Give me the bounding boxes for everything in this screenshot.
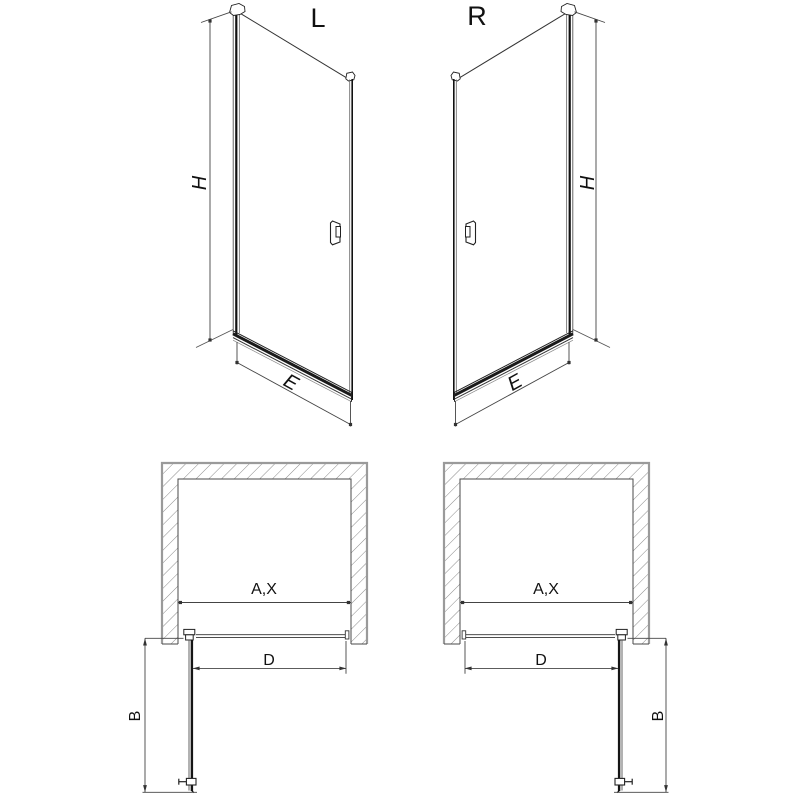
left-width-dim-label: E [280, 370, 303, 396]
technical-drawing-page: L H E R H E A,X D B A,X D [0, 0, 800, 800]
right-door-perspective-view: R H E [451, 1, 610, 427]
right-door-drawing [451, 4, 610, 427]
wall-inner-edge [178, 479, 351, 644]
right-swing-dim-label: B [650, 711, 667, 722]
right-width-dim-label: E [504, 370, 527, 396]
left-height-dim-label: H [189, 175, 211, 190]
left-variant-label: L [310, 3, 325, 33]
wall-hatching [162, 463, 367, 644]
left-opening-dim-label: A,X [251, 581, 277, 598]
right-variant-label: R [467, 1, 487, 31]
left-plan-view: A,X D B [127, 463, 367, 793]
right-plan-walls [444, 463, 649, 644]
left-swing-dim-label: B [127, 711, 144, 722]
left-plan-walls [162, 463, 367, 644]
right-opening-dim-label: A,X [533, 581, 559, 598]
wall-inner-edge [460, 479, 633, 644]
right-height-dim-label: H [577, 175, 599, 190]
wall-hatching [444, 463, 649, 644]
left-door-drawing [196, 4, 355, 427]
right-door-dim-label: D [535, 652, 547, 669]
left-door-dim-label: D [263, 652, 275, 669]
right-plan-view: A,X D B [444, 463, 669, 793]
wall-outer-edge [444, 463, 649, 644]
shower-door-technical-drawing: L H E R H E A,X D B A,X D [0, 0, 800, 800]
wall-outer-edge [162, 463, 367, 644]
left-door-perspective-view: L H E [189, 3, 355, 427]
